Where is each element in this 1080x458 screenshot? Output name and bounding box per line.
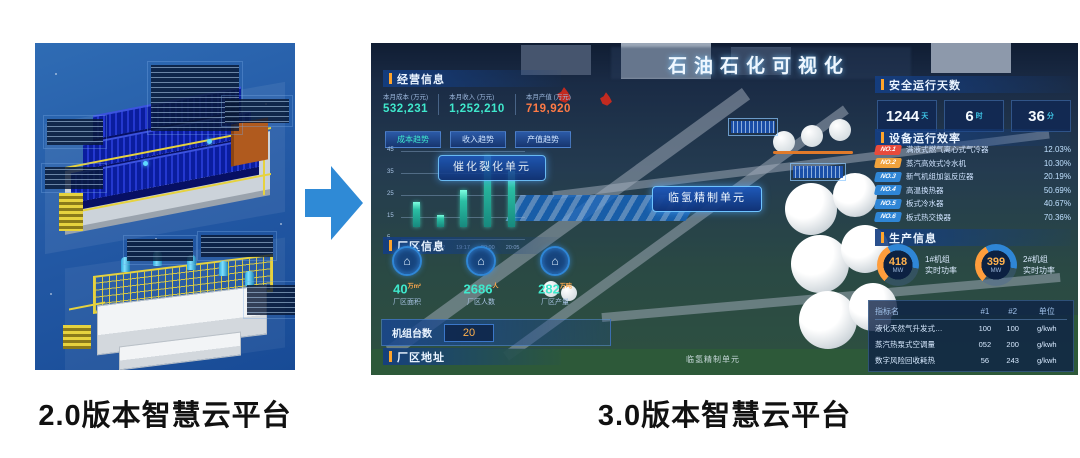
safe-days-values: 1244天 6时 36分 (877, 100, 1071, 132)
equipment-row: NO.1满液式燃气离心式气冷器12.03% (875, 143, 1071, 157)
tab-income-trend[interactable]: 收入趋势 (450, 131, 506, 148)
map-tag[interactable] (790, 163, 846, 181)
stat-plant-area: ⌂ 40万m² 厂区面积 (381, 246, 433, 307)
header-accent (881, 79, 884, 90)
gauge-ring: 418MW (877, 244, 919, 286)
map-tag[interactable] (728, 118, 778, 136)
render-stairs (59, 193, 83, 231)
equipment-list: NO.1满液式燃气离心式气冷器12.03% NO.2蒸汽高效式冷水机10.30%… (875, 143, 1071, 224)
factory-icon: ⌂ (392, 246, 422, 276)
star-dot (280, 223, 282, 225)
production-gauges: 418MW 1#机组实时功率 399MW 2#机组实时功率 (877, 244, 1055, 286)
flare-icon (600, 92, 612, 106)
safe-days-days: 1244天 (877, 100, 937, 132)
trend-tabs: 成本趋势 收入趋势 产值趋势 (385, 131, 571, 148)
header-accent (881, 232, 884, 243)
table-row: 蒸汽热泵式空调量 052 200 g/kwh (875, 336, 1067, 352)
pipe-line (773, 151, 853, 154)
tab-output-trend[interactable]: 产值趋势 (515, 131, 571, 148)
storage-tank (829, 119, 851, 141)
units-count-value: 20 (444, 324, 494, 342)
comparison-figure: 石油石化可视化 临氢精制单元 临氢精制单元 经营信息 本月成本 (万元) 532… (0, 0, 1080, 458)
divider (438, 94, 439, 115)
data-tag (123, 235, 197, 265)
building-silhouette (931, 43, 1011, 73)
map-label-catalytic-cracking[interactable]: 催化裂化单元 (438, 155, 546, 181)
units-count-label: 机组台数 (392, 325, 432, 340)
equipment-row: NO.3新气机组加氢反应器20.19% (875, 170, 1071, 184)
equipment-row: NO.4高温换热器50.69% (875, 184, 1071, 198)
caption-v3: 3.0版本智慧云平台 (371, 392, 1078, 434)
gauge-unit2-power: 399MW 2#机组实时功率 (975, 244, 1055, 286)
star-dot (55, 73, 57, 75)
safe-days-hours: 6时 (944, 100, 1004, 132)
plant-address-header: 厂区地址 (397, 349, 445, 365)
upgrade-arrow (305, 166, 363, 240)
safe-days-minutes: 36分 (1011, 100, 1071, 132)
v3-screenshot: 石油石化可视化 临氢精制单元 临氢精制单元 经营信息 本月成本 (万元) 532… (371, 43, 1078, 375)
sphere-tank (785, 183, 837, 235)
equipment-row: NO.2蒸汽高效式冷水机10.30% (875, 157, 1071, 171)
stat-monthly-cost: 本月成本 (万元) 532,231 (383, 91, 428, 115)
sphere-tank (799, 291, 857, 349)
data-tag (221, 95, 293, 127)
panel-safe-days: 安全运行天数 (875, 76, 1071, 93)
safe-days-header: 安全运行天数 (889, 77, 961, 93)
gauge-ring: 399MW (975, 244, 1017, 286)
output-icon: ⌂ (540, 246, 570, 276)
hotspot-dot (143, 161, 148, 166)
caption-v2: 2.0版本智慧云平台 (35, 392, 295, 434)
map-label-hydro-refining[interactable]: 临氢精制单元 (652, 186, 762, 212)
sphere-tank (791, 235, 849, 293)
production-table: 指标名 #1 #2 单位 液化天然气升发式… 100 100 g/kwh 蒸汽热… (868, 300, 1074, 372)
hotspot-dot (207, 139, 212, 144)
data-tag (243, 281, 295, 319)
map-label-bottom-unit: 临氢精制单元 (686, 354, 740, 365)
star-dot (50, 293, 52, 295)
plant-stats: ⌂ 40万m² 厂区面积 ⌂ 2686人 厂区人数 ⌂ 282万吨 厂区产量 (381, 246, 581, 307)
panel-plant-address: 厂区地址 (383, 348, 561, 365)
render-cylinder (219, 261, 228, 276)
dashboard-title: 石油石化可视化 (622, 51, 896, 78)
stat-monthly-income: 本月收入 (万元) 1,252,210 (449, 91, 505, 115)
equipment-row: NO.5板式冷水器40.67% (875, 197, 1071, 211)
arrow-head (331, 166, 363, 240)
storage-tank (801, 125, 823, 147)
divider (515, 94, 516, 115)
header-accent (389, 351, 392, 362)
data-tag (43, 115, 107, 149)
business-stats: 本月成本 (万元) 532,231 本月收入 (万元) 1,252,210 本月… (383, 91, 571, 115)
header-accent (389, 73, 392, 84)
v2-screenshot (35, 43, 295, 370)
equipment-row: NO.6板式热交换器70.36% (875, 211, 1071, 225)
panel-units-count: 机组台数 20 (381, 319, 611, 346)
data-tag (41, 163, 107, 193)
panel-business-info: 经营信息 (383, 70, 561, 87)
tab-cost-trend[interactable]: 成本趋势 (385, 131, 441, 148)
gauge-unit1-power: 418MW 1#机组实时功率 (877, 244, 957, 286)
stat-plant-output: ⌂ 282万吨 厂区产量 (529, 246, 581, 307)
header-accent (881, 132, 884, 143)
people-icon: ⌂ (466, 246, 496, 276)
table-header-row: 指标名 #1 #2 单位 (875, 303, 1067, 320)
stat-plant-people: ⌂ 2686人 厂区人数 (455, 246, 507, 307)
table-row: 液化天然气升发式… 100 100 g/kwh (875, 320, 1067, 336)
render-stairs (63, 325, 91, 349)
arrow-shaft (305, 189, 333, 217)
stat-monthly-output: 本月产值 (万元) 719,920 (526, 91, 571, 115)
table-row: 数字风险回收耗热 56 243 g/kwh (875, 352, 1067, 368)
data-tag (197, 231, 277, 261)
business-info-header: 经营信息 (397, 71, 445, 87)
